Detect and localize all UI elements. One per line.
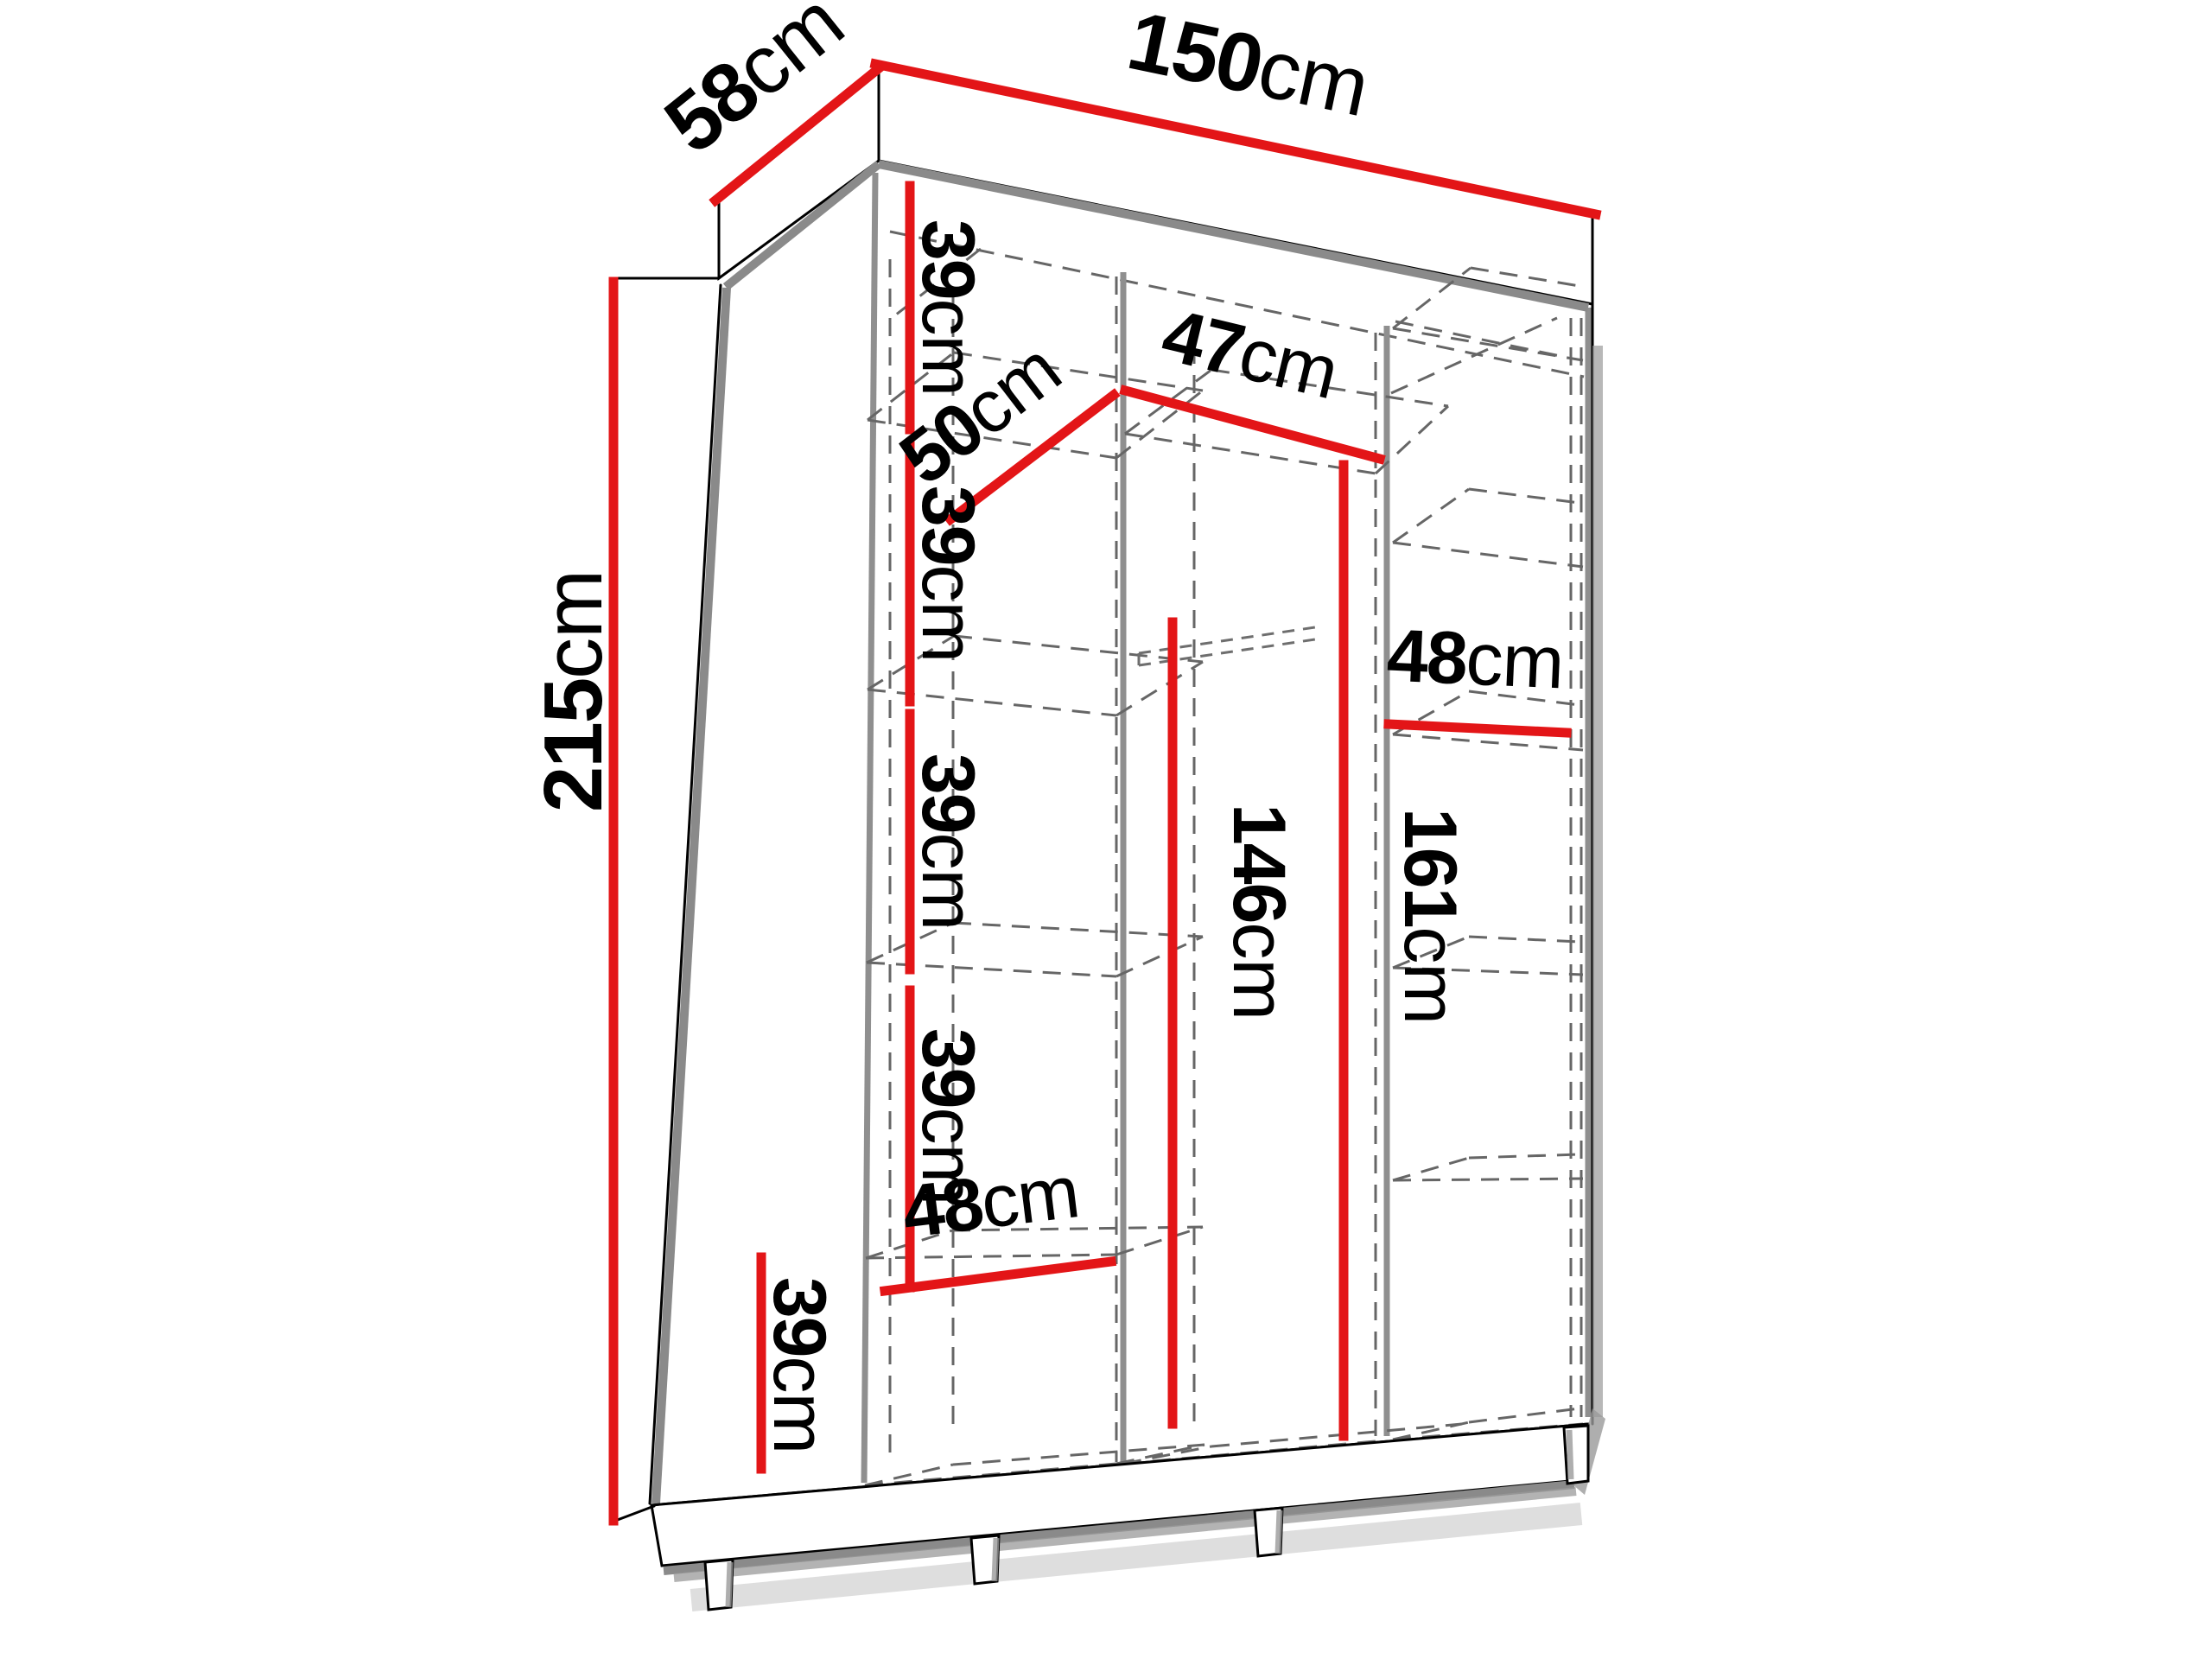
left-gap-label-3: 39cm xyxy=(906,753,989,930)
left-gap-label-2: 39cm xyxy=(906,486,989,662)
middle-width-line xyxy=(1125,391,1380,459)
height-label: 215cm xyxy=(527,570,620,812)
wardrobe-dimension-diagram: 150cm 58cm 215cm 39cm 39cm 39cm 39cm 39c… xyxy=(0,0,2212,1659)
right-width-line xyxy=(1389,724,1567,733)
middle-inner-height-label: 146cm xyxy=(1217,804,1300,1020)
width-label: 150cm xyxy=(1121,0,1376,134)
left-gap-label-5: 39cm xyxy=(758,1277,841,1453)
middle-width-label: 47cm xyxy=(1154,293,1345,415)
right-width-label: 48cm xyxy=(1385,614,1565,705)
left-bottom-width-line xyxy=(885,1262,1111,1291)
middle-opening-height-label: 161cm xyxy=(1389,808,1471,1024)
